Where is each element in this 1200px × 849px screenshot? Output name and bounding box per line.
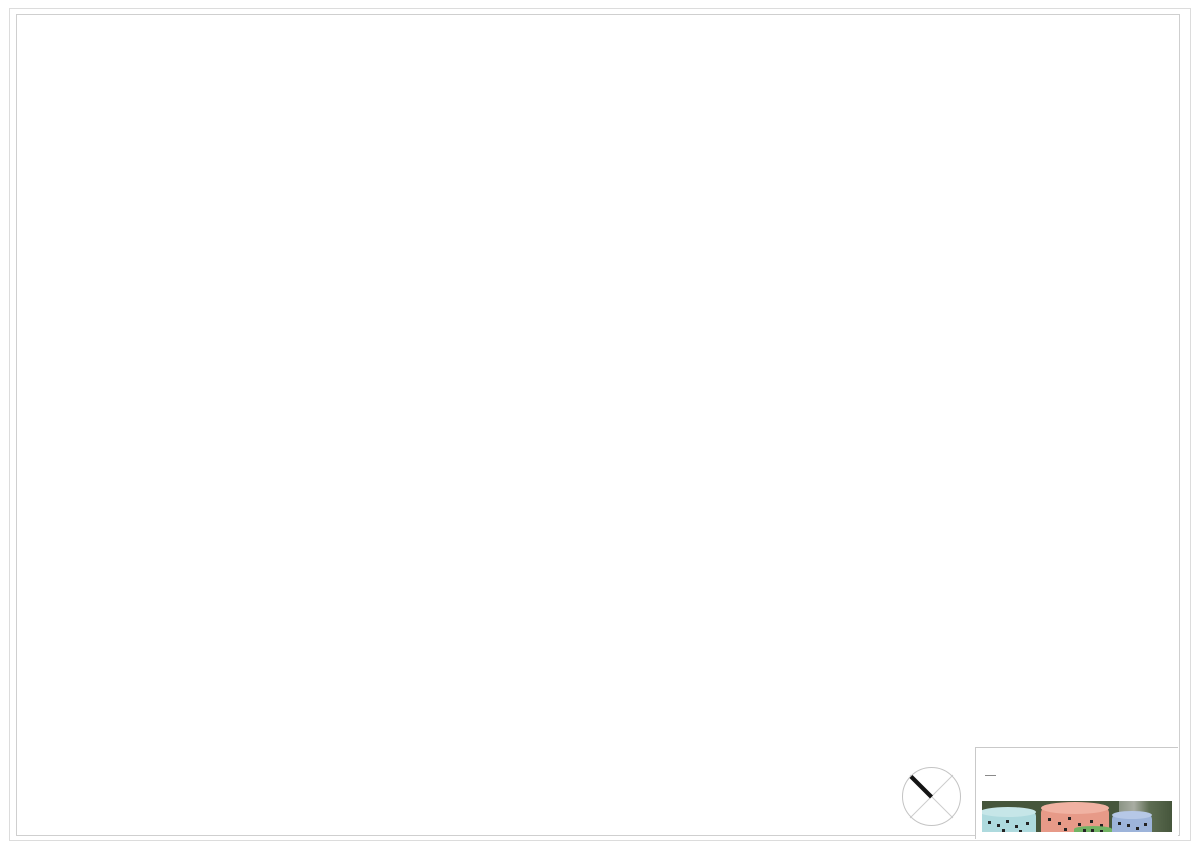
title-block (975, 747, 1178, 839)
site-plan-drawing (0, 0, 1200, 849)
photo-cylinder-green (1074, 826, 1112, 832)
drawing-caption (33, 813, 69, 820)
project-photo (982, 801, 1172, 832)
photo-cylinder-blue (1112, 811, 1152, 832)
title-block-meta (986, 754, 1178, 759)
logo-square (991, 764, 996, 768)
photo-cylinder-cyan (982, 807, 1036, 832)
logo-square (985, 764, 990, 768)
title-block-firm-row (976, 764, 1178, 776)
firm-logo-icon (985, 764, 996, 776)
logo-square (991, 769, 996, 773)
north-needle-icon (910, 775, 934, 799)
logo-square (985, 769, 990, 773)
north-compass (896, 758, 968, 830)
drawing-sheet (0, 0, 1200, 849)
